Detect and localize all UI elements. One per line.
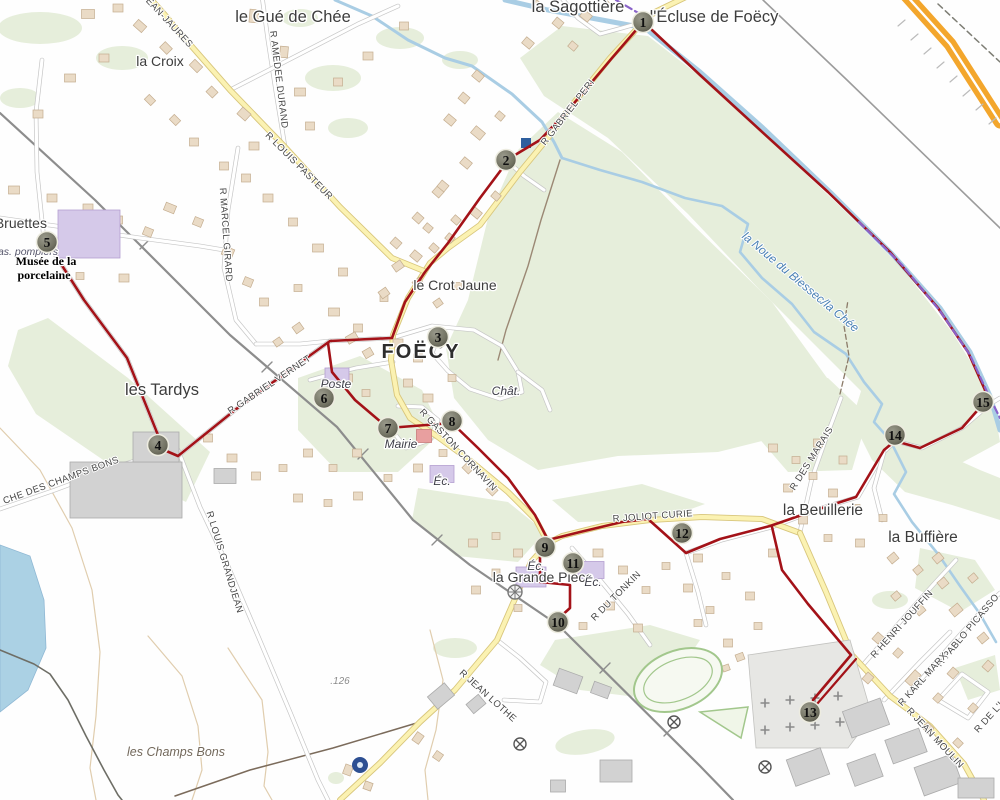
map-label: le Gué de Chée [235,8,351,26]
svg-text:3: 3 [435,330,442,345]
map-label: R AMEDEE DURAND [267,30,290,129]
svg-text:4: 4 [155,438,162,453]
waypoint-marker-7[interactable]: 7 [378,418,399,439]
map-label: la Beuillerie [783,502,863,519]
waypoint-marker-6[interactable]: 6 [314,388,335,409]
svg-text:2: 2 [503,153,510,168]
svg-text:11: 11 [567,556,580,571]
waypoint-marker-1[interactable]: 1 [633,12,654,33]
svg-text:13: 13 [803,705,817,720]
svg-text:7: 7 [385,421,392,436]
waypoint-marker-10[interactable]: 10 [548,612,569,633]
map-canvas[interactable]: le Gué de Chéela Sagottièrel'Écluse de F… [0,0,1000,800]
svg-text:8: 8 [449,414,456,429]
map-label: la Croix [136,53,183,69]
map-label: porcelaine [17,268,71,282]
map-label: l'Écluse de Foëcy [650,7,780,26]
pond [0,545,46,712]
map-label: Éc. [527,558,544,573]
pylon-icon [668,716,680,728]
map-label: FOËCY [382,340,461,363]
svg-text:1: 1 [640,15,647,30]
pylon-icon [514,738,526,750]
waypoint-marker-3[interactable]: 3 [428,327,449,348]
pylon-icon [759,761,771,773]
svg-text:6: 6 [321,391,328,406]
sports-triangle [700,707,748,738]
waypoint-marker-2[interactable]: 2 [496,150,517,171]
map-label: Éc. [433,473,450,488]
map-svg: le Gué de Chéela Sagottièrel'Écluse de F… [0,0,1000,800]
map-label: les Champs Bons [127,745,225,759]
svg-text:9: 9 [542,540,549,555]
waypoint-marker-11[interactable]: 11 [563,553,584,574]
map-label: R LOUIS PASTEUR [263,130,335,202]
waypoint-marker-14[interactable]: 14 [885,425,906,446]
svg-text:15: 15 [976,395,990,410]
map-label: le Crot Jaune [413,277,496,293]
water-tower-icon [352,757,368,773]
waypoint-marker-12[interactable]: 12 [672,523,693,544]
waypoint-marker-9[interactable]: 9 [535,537,556,558]
waypoint-marker-5[interactable]: 5 [37,232,58,253]
svg-text:14: 14 [888,428,902,443]
motorway [898,0,1000,124]
map-label: Musée de la [16,254,77,268]
map-label: R LOUIS GRANDJEAN [204,510,246,615]
wheel-icon [508,585,522,599]
industrial-buildings [70,432,994,798]
waypoint-marker-4[interactable]: 4 [148,435,169,456]
map-label: .126 [330,676,350,687]
waypoint-marker-15[interactable]: 15 [973,392,994,413]
map-label: Éc. [584,574,601,589]
map-label: les Bruettes [0,215,47,231]
waypoint-marker-13[interactable]: 13 [800,702,821,723]
svg-text:10: 10 [551,615,565,630]
svg-text:5: 5 [44,235,51,250]
wheel-icon [508,585,522,599]
map-label: la Sagottière [532,0,625,16]
map-label: les Tardys [125,381,199,399]
svg-text:12: 12 [675,526,689,541]
map-label: R JEAN LOTHE [457,668,519,725]
water-tower-icon [352,757,368,773]
waypoint-marker-8[interactable]: 8 [442,411,463,432]
map-label: la Buffière [888,529,958,546]
map-label: Chât. [492,384,521,398]
mairie-building [417,430,432,443]
